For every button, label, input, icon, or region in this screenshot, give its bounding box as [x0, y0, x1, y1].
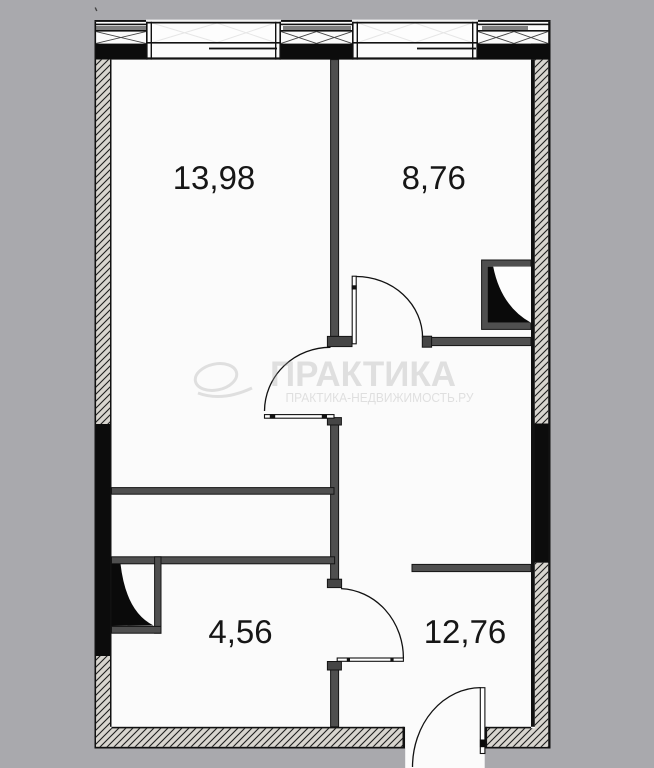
svg-text:4,56: 4,56 — [208, 613, 272, 650]
svg-text:ПРАКТИКА: ПРАКТИКА — [270, 355, 456, 394]
svg-text:13,98: 13,98 — [173, 159, 256, 196]
svg-text:12,76: 12,76 — [424, 613, 507, 650]
svg-text:ПРАКТИКА-НЕДВИЖИМОСТЬ.РУ: ПРАКТИКА-НЕДВИЖИМОСТЬ.РУ — [286, 390, 475, 405]
svg-text:8,76: 8,76 — [402, 159, 466, 196]
